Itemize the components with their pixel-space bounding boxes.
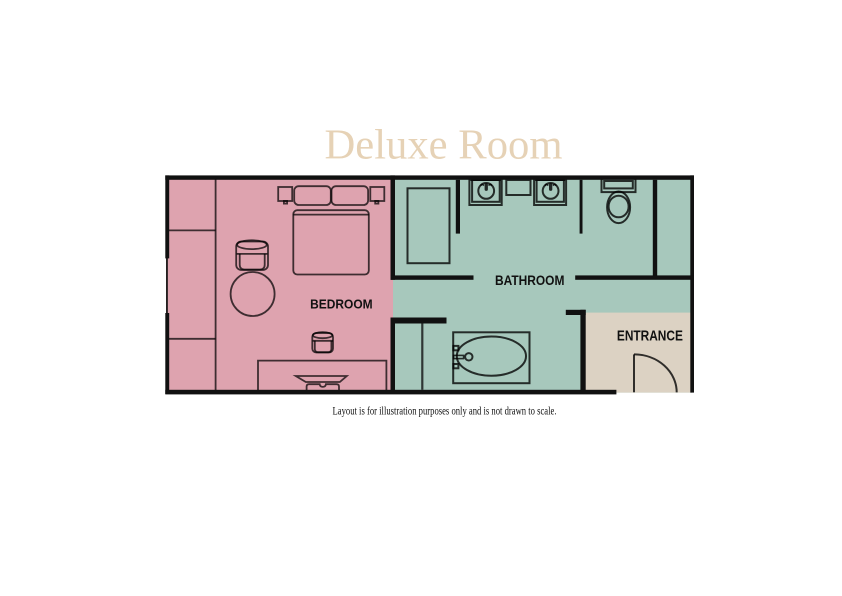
svg-text:BEDROOM: BEDROOM — [310, 298, 373, 312]
svg-text:BATHROOM: BATHROOM — [495, 273, 565, 288]
svg-text:ENTRANCE: ENTRANCE — [617, 328, 683, 344]
svg-text:Deluxe Room: Deluxe Room — [325, 122, 563, 169]
svg-text:Layout is for illustration pur: Layout is for illustration purposes only… — [333, 406, 557, 418]
